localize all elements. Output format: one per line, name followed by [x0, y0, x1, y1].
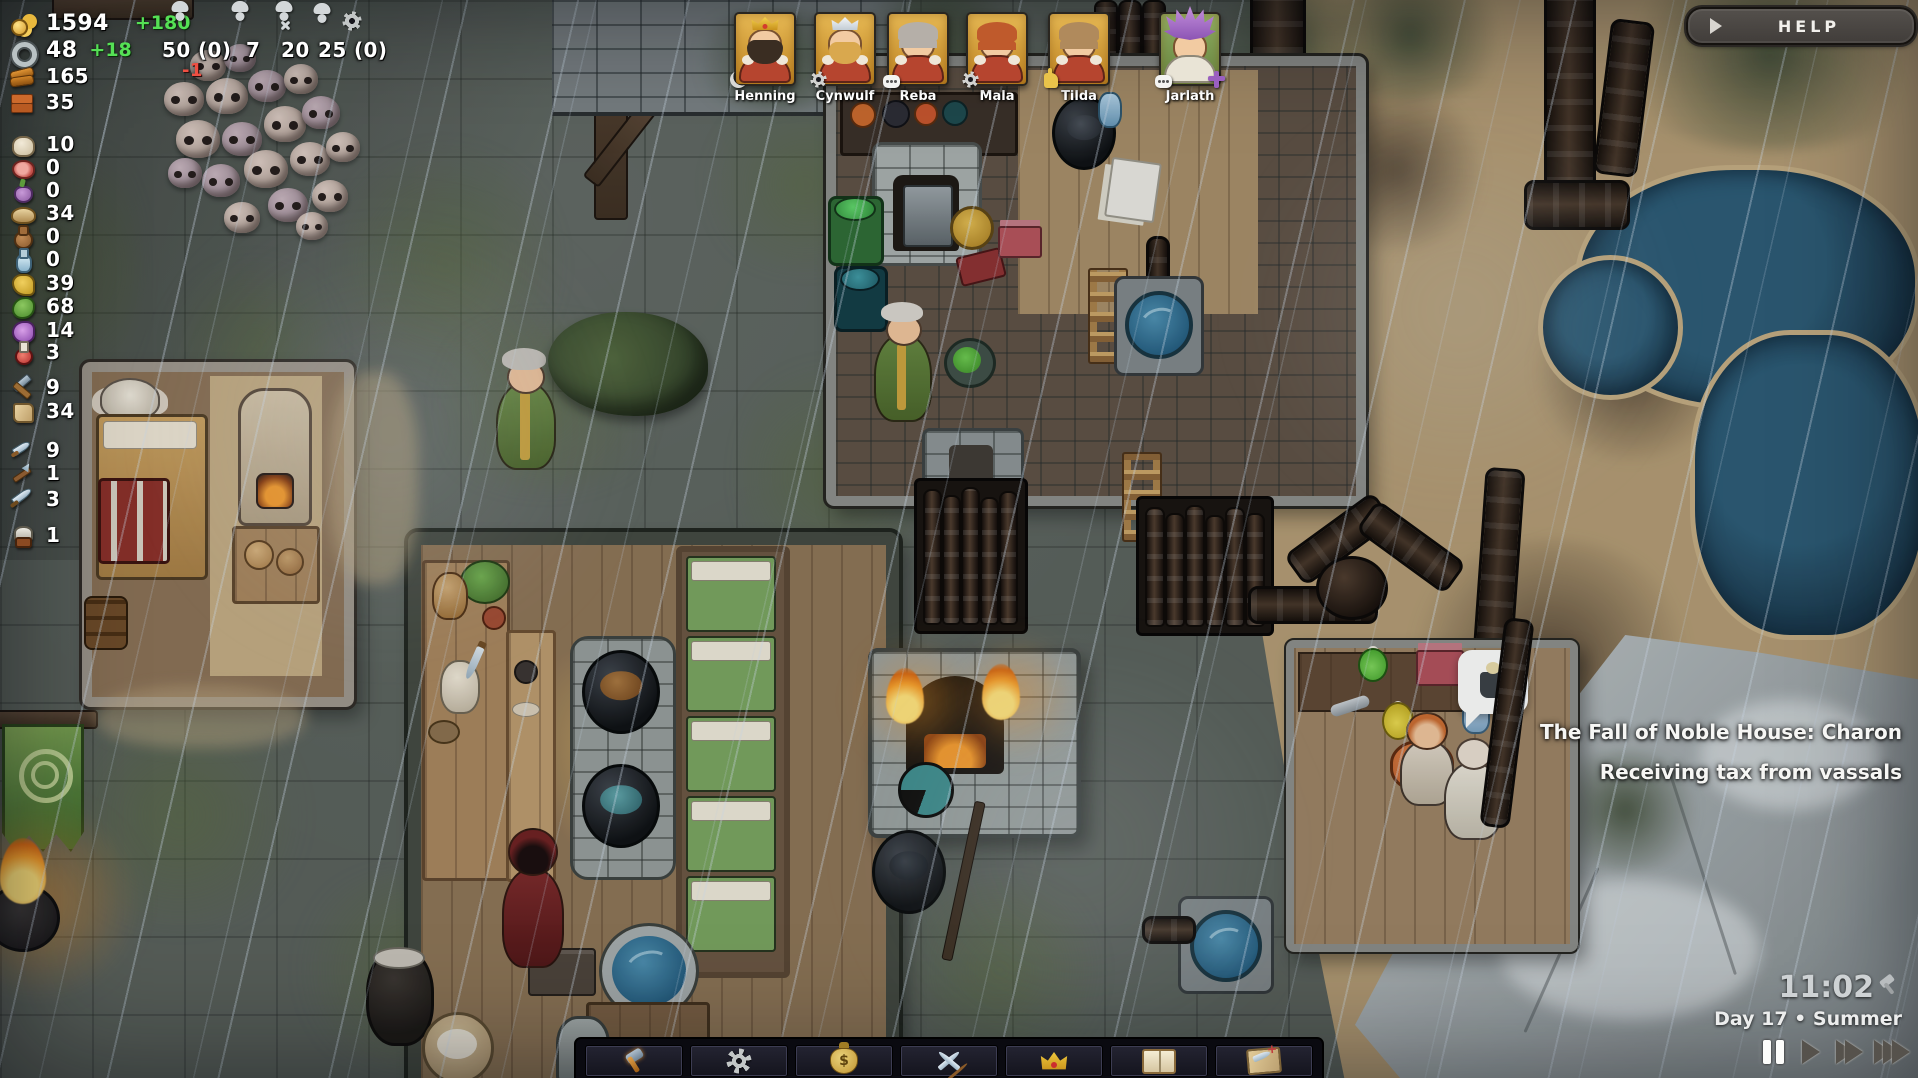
fog-patch	[820, 660, 1340, 1040]
portrait-mala[interactable]: Mala	[966, 12, 1028, 104]
bunk-beds[interactable]	[676, 546, 790, 978]
silver-crown-icon	[831, 17, 859, 30]
pot	[882, 100, 910, 128]
speech-bubble-icon	[1155, 75, 1172, 88]
cross-icon	[1208, 71, 1225, 88]
gold-crown-icon	[751, 17, 779, 30]
barrel	[84, 596, 128, 650]
play-button[interactable]	[1802, 1040, 1820, 1064]
nobles-button[interactable]	[1005, 1045, 1103, 1077]
cauldron[interactable]	[582, 650, 660, 734]
portrait-name: Cynwulf	[814, 89, 876, 104]
mug	[514, 660, 538, 684]
crossed-swords-icon	[934, 1048, 964, 1074]
help-label: HELP	[1722, 17, 1896, 36]
portrait-tilda[interactable]: Tilda	[1048, 12, 1110, 104]
pause-button[interactable]	[1763, 1040, 1784, 1064]
hooded-figure[interactable]	[500, 828, 562, 966]
game-screen: 1594 +180 48 +18 50 (0) 7 20 25 (0) -1 1…	[0, 0, 1918, 1078]
cauldron[interactable]	[582, 764, 660, 848]
play-triangle-icon	[1710, 18, 1722, 34]
portrait-henning[interactable]: Henning	[734, 12, 796, 104]
crown-icon	[1040, 1051, 1068, 1071]
fog-patch	[1220, 120, 1700, 500]
fog-patch	[120, 220, 660, 640]
production-button[interactable]	[690, 1045, 788, 1077]
mortar-bowl	[422, 1012, 494, 1078]
red-books	[998, 226, 1042, 258]
green-barrel[interactable]	[828, 196, 884, 266]
green-flask	[1358, 648, 1388, 682]
pipe-organ-rack[interactable]	[914, 478, 1028, 634]
portrait-reba[interactable]: Reba	[887, 12, 949, 104]
blue-basin[interactable]	[1114, 276, 1204, 376]
red-books	[1416, 650, 1464, 686]
pipe-joint	[1316, 556, 1388, 620]
pointing-hand-icon	[1044, 73, 1058, 88]
lake	[1690, 330, 1918, 640]
play-icon	[1802, 1040, 1820, 1064]
plate	[512, 702, 540, 717]
gear-icon	[726, 1048, 752, 1074]
portrait-cynwulf[interactable]: Cynwulf	[814, 12, 876, 104]
green-bowl	[944, 338, 996, 388]
military-button[interactable]	[900, 1045, 998, 1077]
world-map-button[interactable]	[1215, 1045, 1313, 1077]
fast-forward-button[interactable]	[1836, 1040, 1863, 1064]
fastest-button[interactable]	[1874, 1040, 1910, 1064]
pot	[914, 102, 938, 126]
wood-beam	[52, 0, 194, 20]
bowl	[428, 720, 460, 744]
pot	[850, 102, 876, 128]
portrait-jarlath[interactable]: Jarlath	[1159, 12, 1221, 104]
gray-hair	[898, 22, 938, 42]
brown-hair	[1059, 22, 1099, 42]
portrait-name: Tilda	[1048, 89, 1110, 104]
papers	[1104, 157, 1162, 223]
speech-bubble-icon	[883, 75, 900, 88]
hammer-icon	[619, 1048, 649, 1074]
book-icon	[1142, 1049, 1176, 1074]
metal-door	[903, 185, 953, 247]
red-hair	[977, 22, 1017, 42]
moon-icon	[730, 71, 747, 88]
purple-headdress-icon	[1164, 6, 1216, 40]
portrait-name: Reba	[887, 89, 949, 104]
sand-path	[96, 686, 306, 748]
portrait-name: Henning	[734, 89, 796, 104]
alchemist-woman[interactable]	[874, 304, 930, 420]
money-bag-icon: $	[830, 1048, 858, 1074]
white-hair	[881, 302, 923, 322]
amber-bowl	[950, 206, 994, 250]
help-button[interactable]: HELP	[1686, 7, 1916, 45]
knowledge-button[interactable]	[1110, 1045, 1208, 1077]
cliff-highlight	[1700, 700, 1880, 810]
portrait-name: Mala	[966, 89, 1028, 104]
economy-button[interactable]: $	[795, 1045, 893, 1077]
build-button[interactable]	[585, 1045, 683, 1077]
portrait-name: Jarlath	[1159, 89, 1221, 104]
bottom-toolbar: $	[574, 1037, 1324, 1078]
map-icon	[1246, 1047, 1282, 1076]
large-pot	[366, 948, 434, 1046]
